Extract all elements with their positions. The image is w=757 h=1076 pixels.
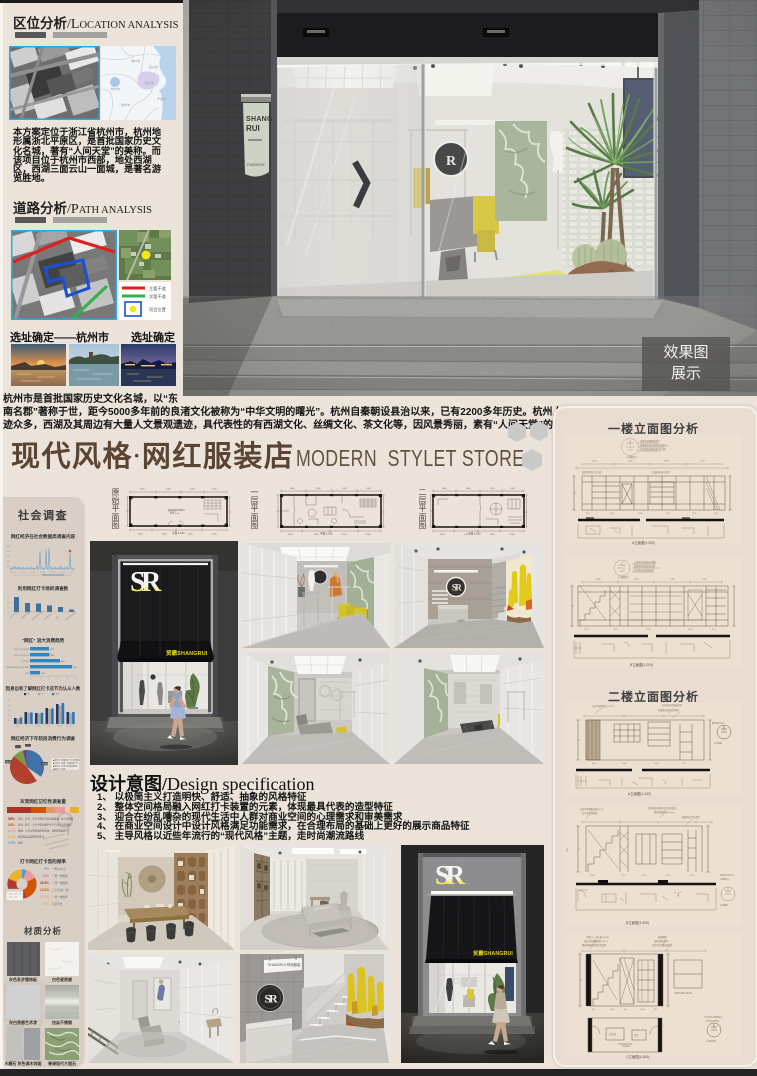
svg-text:餐饮消费: 餐饮消费 xyxy=(21,659,29,663)
svg-text:1500: 1500 xyxy=(6,561,10,563)
svg-text:2500: 2500 xyxy=(6,551,10,553)
svg-text:青绿现代大理石: 青绿现代大理石 xyxy=(48,1060,76,1066)
svg-text:原始结构 680m²: 原始结构 680m² xyxy=(168,508,185,512)
svg-text:60: 60 xyxy=(57,678,59,680)
svg-text:艺术展览馆: 艺术展览馆 xyxy=(43,612,53,621)
svg-text:8.1%: 8.1% xyxy=(8,829,16,833)
svg-text:灰白质感艺术漆: 灰白质感艺术漆 xyxy=(9,1019,37,1025)
svg-text:3400: 3400 xyxy=(212,489,218,491)
svg-text:40: 40 xyxy=(7,597,9,599)
svg-text:宁波市: 宁波市 xyxy=(157,96,166,101)
svg-text:20: 20 xyxy=(8,715,10,717)
svg-text:几乎不去: 几乎不去 xyxy=(52,902,63,906)
svg-text:3600: 3600 xyxy=(288,534,294,535)
svg-text:15%: 15% xyxy=(41,673,45,675)
svg-text:金华市: 金华市 xyxy=(121,102,130,107)
svg-text:40: 40 xyxy=(48,678,50,680)
svg-text:展示: 展示 xyxy=(671,366,701,382)
svg-text:19-22: 19-22 xyxy=(25,726,29,728)
svg-text:C立面图(1:200): C立面图(1:200) xyxy=(626,1054,649,1059)
svg-text:夜市: 夜市 xyxy=(55,615,60,620)
svg-text:1.0%: 1.0% xyxy=(8,841,16,845)
svg-text:5月1日: 5月1日 xyxy=(50,570,56,574)
svg-text:30: 30 xyxy=(7,602,9,604)
svg-text:1800: 1800 xyxy=(596,579,602,581)
svg-text:3000: 3000 xyxy=(6,546,10,548)
svg-text:8%: 8% xyxy=(44,867,49,871)
svg-text:网红产品周边购物: 网红产品周边购物 xyxy=(14,653,29,657)
svg-text:100: 100 xyxy=(74,678,77,680)
svg-text:三个月-两一次: 三个月-两一次 xyxy=(52,888,69,892)
svg-text:平面 1:100: 平面 1:100 xyxy=(468,532,481,535)
svg-text:绍兴市: 绍兴市 xyxy=(145,80,154,85)
svg-text:65%: 65% xyxy=(73,667,77,669)
svg-text:平面 1:100: 平面 1:100 xyxy=(320,532,333,535)
svg-text:3600: 3600 xyxy=(290,488,296,490)
svg-text:1200: 1200 xyxy=(592,461,598,463)
svg-text:A立面图(1:200): A立面图(1:200) xyxy=(632,540,655,545)
svg-text:3600: 3600 xyxy=(138,534,144,536)
svg-text:3400: 3400 xyxy=(316,488,322,490)
svg-text:6月1日: 6月1日 xyxy=(60,570,66,574)
svg-text:一周3-5以上: 一周3-5以上 xyxy=(52,867,67,871)
svg-text:抖音、快手、小红书等主播平台上产山打卡营销量: 抖音、快手、小红书等主播平台上产山打卡营销量 xyxy=(18,823,71,827)
svg-text:56%: 56% xyxy=(8,817,15,821)
svg-text:3400: 3400 xyxy=(366,534,372,535)
svg-text:贸霸SHANGRUI: 贸霸SHANGRUI xyxy=(166,649,208,657)
svg-text:男: 男 xyxy=(28,692,30,696)
svg-text:3月1日: 3月1日 xyxy=(30,570,36,574)
svg-text:水磨石 灰色调木饰面: 水磨石 灰色调木饰面 xyxy=(3,1060,41,1066)
svg-text:32%: 32% xyxy=(50,649,54,651)
svg-text:13%: 13% xyxy=(43,874,50,878)
svg-text:3200: 3200 xyxy=(342,534,348,535)
svg-text:27-35: 27-35 xyxy=(46,726,50,728)
svg-text:10: 10 xyxy=(8,720,10,722)
svg-text:其他: 其他 xyxy=(25,671,29,675)
svg-text:拍照打卡发朋友圈: 拍照打卡发朋友圈 xyxy=(14,647,29,651)
svg-text:3400: 3400 xyxy=(314,534,320,535)
svg-text:3400: 3400 xyxy=(466,488,472,490)
svg-text:服饰潮牌购物(网红店铺-商圈): 服饰潮牌购物(网红店铺-商圈) xyxy=(6,665,29,669)
svg-text:嘉兴市: 嘉兴市 xyxy=(149,64,158,69)
svg-text:18岁: 18岁 xyxy=(15,725,19,728)
svg-text:0.9%: 0.9% xyxy=(8,835,16,839)
svg-text:湖州市: 湖州市 xyxy=(131,58,140,63)
svg-text:12.3%: 12.3% xyxy=(40,895,49,899)
svg-text:3400: 3400 xyxy=(510,534,516,535)
svg-text:杭州市: 杭州市 xyxy=(111,86,120,91)
svg-text:1200: 1200 xyxy=(700,461,706,463)
svg-text:26.8%: 26.8% xyxy=(40,881,49,885)
svg-text:一周一次概率: 一周一次概率 xyxy=(52,874,68,878)
svg-text:库房: 库房 xyxy=(634,1033,639,1037)
svg-text:A立面图(1:200): A立面图(1:200) xyxy=(628,791,651,796)
svg-text:3200: 3200 xyxy=(490,534,496,535)
svg-text:34%: 34% xyxy=(8,823,15,827)
svg-text:30: 30 xyxy=(8,710,10,712)
svg-text:3200: 3200 xyxy=(342,488,348,490)
svg-text:2月1日: 2月1日 xyxy=(20,570,26,574)
svg-text:3400: 3400 xyxy=(366,488,372,490)
svg-text:次要干道: 次要干道 xyxy=(149,293,167,300)
svg-text:一年一金概率: 一年一金概率 xyxy=(52,895,68,899)
svg-text:白色瓷质感: 白色瓷质感 xyxy=(52,976,72,982)
svg-text:1500: 1500 xyxy=(702,579,708,581)
svg-text:3200: 3200 xyxy=(190,489,196,491)
svg-text:2400: 2400 xyxy=(634,579,640,581)
svg-text:2000: 2000 xyxy=(6,556,10,558)
svg-text:受到实际运营期间的补走: 受到实际运营期间的补走 xyxy=(18,835,45,839)
svg-text:贸霸SHANGRUI: 贸霸SHANGRUI xyxy=(473,949,513,957)
svg-text:平面 1:100: 平面 1:100 xyxy=(172,531,185,535)
svg-text:微博、小马沙等营销趋势实体、其他提供服务气: 微博、小马沙等营销趋势实体、其他提供服务气 xyxy=(18,829,69,833)
svg-text:19%: 19% xyxy=(43,902,50,906)
svg-text:合计: 合计 xyxy=(56,692,60,696)
svg-text:2400: 2400 xyxy=(670,579,676,581)
svg-text:B立面图(1:200): B立面图(1:200) xyxy=(630,662,653,667)
svg-text:灰色系步锤饰板: 灰色系步锤饰板 xyxy=(9,976,38,982)
svg-text:36-45: 36-45 xyxy=(57,726,61,728)
svg-text:2400: 2400 xyxy=(628,461,634,463)
svg-text:3400: 3400 xyxy=(162,534,168,536)
svg-text:48%: 48% xyxy=(61,661,65,663)
svg-text:3400: 3400 xyxy=(166,489,172,491)
svg-text:2400: 2400 xyxy=(664,461,670,463)
svg-text:女: 女 xyxy=(42,692,44,696)
svg-text:40: 40 xyxy=(8,705,10,707)
svg-text:主要干道: 主要干道 xyxy=(149,285,167,292)
svg-text:7月: 7月 xyxy=(70,570,73,574)
svg-text:3600: 3600 xyxy=(440,534,446,535)
svg-text:80: 80 xyxy=(66,678,68,680)
svg-text:试衣间: 试衣间 xyxy=(609,1032,617,1036)
svg-text:B立面图(1:200): B立面图(1:200) xyxy=(626,920,649,925)
svg-text:3200: 3200 xyxy=(490,488,496,490)
svg-text:其他: 其他 xyxy=(18,841,23,845)
svg-text:1000: 1000 xyxy=(6,566,10,568)
svg-text:4月1日: 4月1日 xyxy=(40,570,46,574)
svg-text:3600: 3600 xyxy=(442,488,448,490)
svg-text:拉丝不锈钢: 拉丝不锈钢 xyxy=(52,1019,72,1025)
svg-text:20: 20 xyxy=(39,678,41,680)
svg-text:33%: 33% xyxy=(51,655,55,657)
svg-text:23-26: 23-26 xyxy=(36,726,40,728)
svg-text:SHANGRUI 时尚服装: SHANGRUI 时尚服装 xyxy=(268,962,301,967)
svg-text:20: 20 xyxy=(7,607,9,609)
svg-text:3200: 3200 xyxy=(188,534,194,536)
svg-text:3600: 3600 xyxy=(140,489,146,491)
svg-text:0: 0 xyxy=(30,678,31,680)
svg-text:12.8%: 12.8% xyxy=(40,888,49,892)
svg-text:淘宝、京东、小红书等在乎这边发展强、进人店铺数: 淘宝、京东、小红书等在乎这边发展强、进人店铺数 xyxy=(18,817,74,821)
svg-text:1月1日: 1月1日 xyxy=(10,570,16,574)
svg-text:3400: 3400 xyxy=(510,488,516,490)
svg-text:3400: 3400 xyxy=(212,534,218,536)
svg-text:52.3%: 52.3% xyxy=(42,764,48,766)
svg-text:36.2%: 36.2% xyxy=(6,762,12,764)
svg-text:50: 50 xyxy=(8,700,10,702)
svg-text:效果图: 效果图 xyxy=(663,344,708,361)
svg-text:45岁以上: 45岁以上 xyxy=(66,725,73,728)
svg-text:10: 10 xyxy=(7,612,9,614)
svg-text:项目位置: 项目位置 xyxy=(149,306,166,313)
svg-text:一月一金概率: 一月一金概率 xyxy=(52,881,68,885)
